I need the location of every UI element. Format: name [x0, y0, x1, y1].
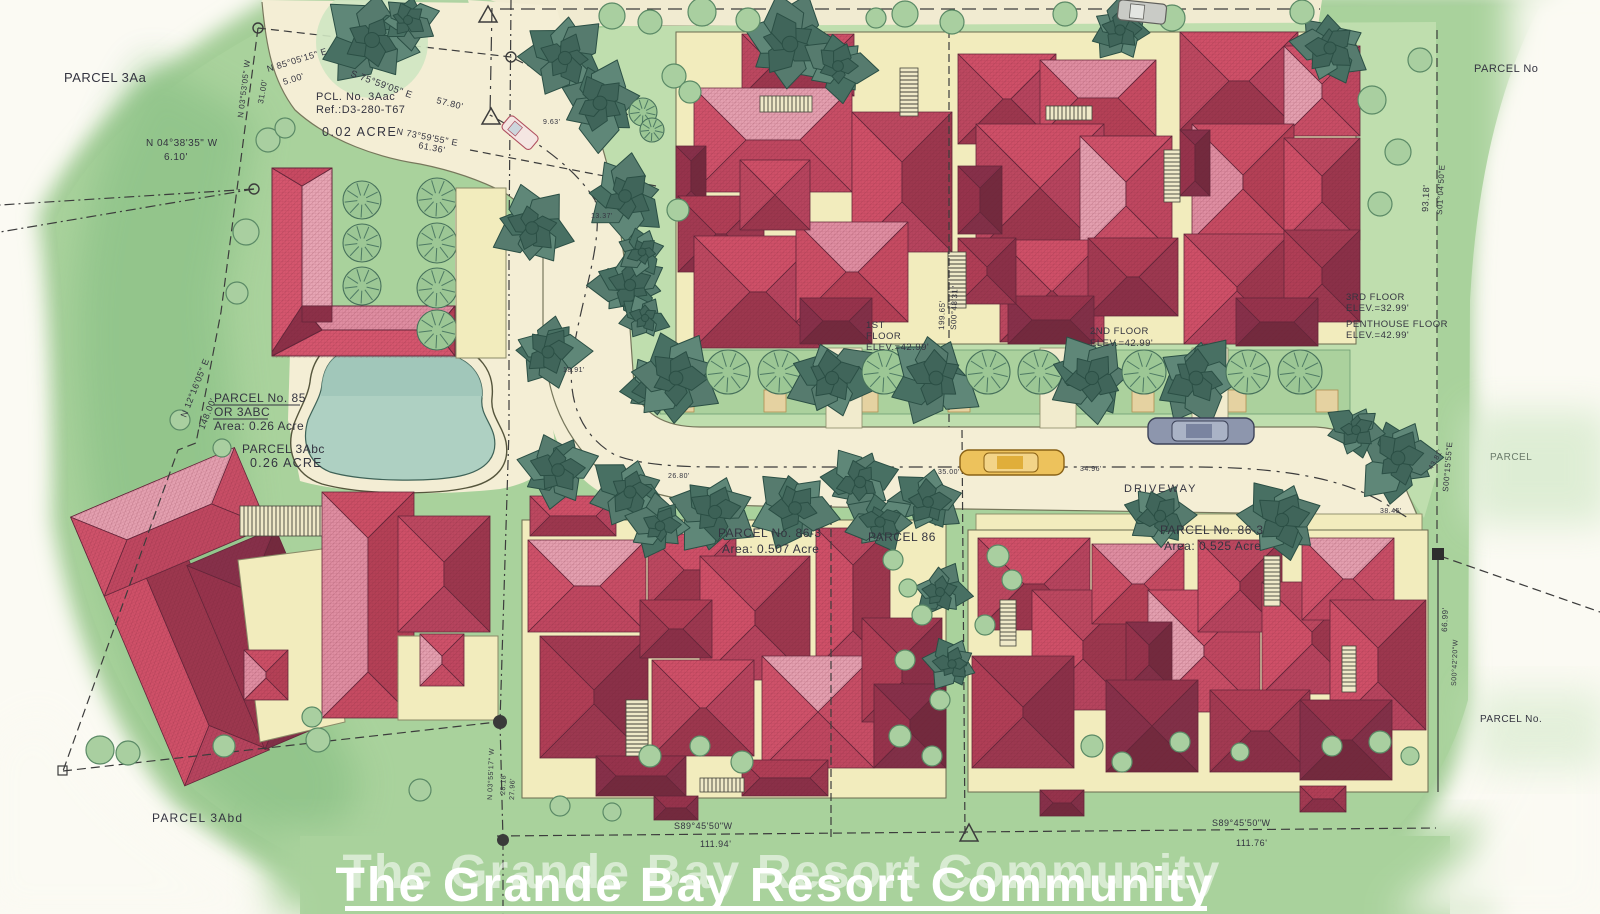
svg-text:1ST: 1ST	[866, 320, 885, 331]
svg-text:0.26 ACRE: 0.26 ACRE	[250, 456, 323, 470]
svg-text:S00°42'20"W: S00°42'20"W	[1450, 639, 1460, 686]
svg-text:PARCEL No.: PARCEL No.	[1480, 714, 1542, 725]
svg-text:Area: 0.26 Acre: Area: 0.26 Acre	[214, 419, 304, 433]
svg-text:ELEV.=42.99': ELEV.=42.99'	[866, 342, 929, 353]
svg-text:93.18': 93.18'	[1420, 184, 1431, 212]
svg-text:0.02 ACRE: 0.02 ACRE	[322, 125, 397, 139]
svg-text:N 04°38'35" W: N 04°38'35" W	[146, 138, 218, 149]
svg-text:ELEV.=32.99': ELEV.=32.99'	[1346, 303, 1409, 314]
svg-text:18.91': 18.91'	[563, 367, 585, 374]
svg-text:66.99': 66.99'	[1440, 607, 1450, 632]
svg-text:PENTHOUSE FLOOR: PENTHOUSE FLOOR	[1346, 319, 1448, 330]
svg-text:OR 3ABC: OR 3ABC	[214, 405, 270, 419]
svg-text:3RD FLOOR: 3RD FLOOR	[1346, 292, 1405, 303]
svg-text:PARCEL No: PARCEL No	[1474, 63, 1538, 75]
svg-text:111.76': 111.76'	[1236, 838, 1267, 848]
svg-text:Ref.:D3-280-T67: Ref.:D3-280-T67	[316, 104, 405, 116]
svg-text:PARCEL No. 86-3: PARCEL No. 86-3	[1160, 523, 1264, 537]
svg-text:35.00': 35.00'	[938, 469, 960, 476]
svg-text:S00°48'31": S00°48'31"	[949, 285, 960, 330]
svg-text:2ND FLOOR: 2ND FLOOR	[1090, 326, 1149, 337]
svg-text:27.96': 27.96'	[509, 778, 517, 800]
svg-text:PARCEL 3Abc: PARCEL 3Abc	[242, 442, 325, 456]
svg-text:6.10': 6.10'	[164, 152, 188, 163]
svg-text:PARCEL No. 86-3: PARCEL No. 86-3	[718, 526, 822, 540]
svg-text:DRIVEWAY: DRIVEWAY	[1124, 483, 1197, 495]
svg-text:S89°45'50"W: S89°45'50"W	[1212, 818, 1271, 828]
svg-text:PCL. No. 3Aac: PCL. No. 3Aac	[316, 91, 395, 103]
svg-text:Area: 0.507 Acre: Area: 0.507 Acre	[722, 542, 819, 556]
svg-text:PARCEL No. 85: PARCEL No. 85	[214, 391, 306, 405]
svg-text:199.65': 199.65'	[937, 300, 947, 330]
svg-text:9.63': 9.63'	[543, 119, 560, 126]
svg-text:ELEV.=42.99': ELEV.=42.99'	[1346, 330, 1409, 341]
svg-text:PARCEL 3Abd: PARCEL 3Abd	[152, 811, 243, 825]
svg-text:The Grande Bay Resort Communit: The Grande Bay Resort Community	[335, 859, 1214, 912]
svg-text:S89°45'50"W: S89°45'50"W	[674, 821, 733, 831]
svg-text:PARCEL: PARCEL	[1490, 452, 1532, 463]
svg-text:26.80': 26.80'	[668, 473, 690, 480]
svg-text:PARCEL 3Aa: PARCEL 3Aa	[64, 70, 147, 85]
svg-text:FLOOR: FLOOR	[866, 331, 901, 342]
svg-text:34.96': 34.96'	[1080, 466, 1102, 473]
svg-text:28.18': 28.18'	[500, 773, 508, 795]
svg-text:ELEV.=42.99': ELEV.=42.99'	[1090, 338, 1153, 349]
svg-text:PARCEL 86: PARCEL 86	[868, 530, 936, 544]
svg-text:13.37': 13.37'	[591, 213, 613, 220]
svg-text:Area: 0.525 Acre: Area: 0.525 Acre	[1164, 539, 1261, 553]
svg-text:38.45': 38.45'	[1380, 508, 1402, 515]
